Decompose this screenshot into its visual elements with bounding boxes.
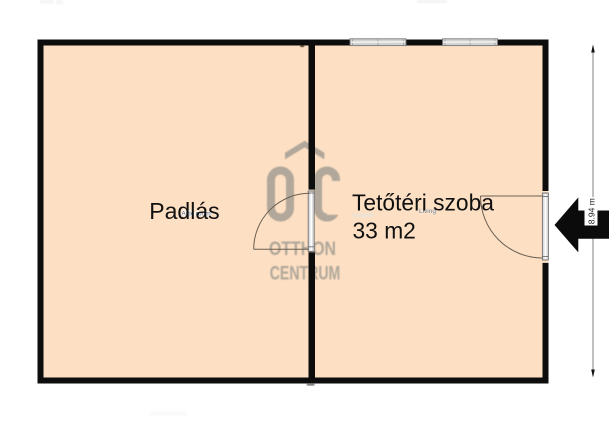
svg-text:33 m2: 33 m2 — [353, 218, 416, 244]
svg-text:Tetőtéri szoba: Tetőtéri szoba — [352, 189, 494, 215]
svg-text:Padlás: Padlás — [149, 198, 219, 224]
svg-text:CENTRUM: CENTRUM — [270, 263, 341, 285]
svg-text:8.94 m: 8.94 m — [586, 198, 596, 224]
